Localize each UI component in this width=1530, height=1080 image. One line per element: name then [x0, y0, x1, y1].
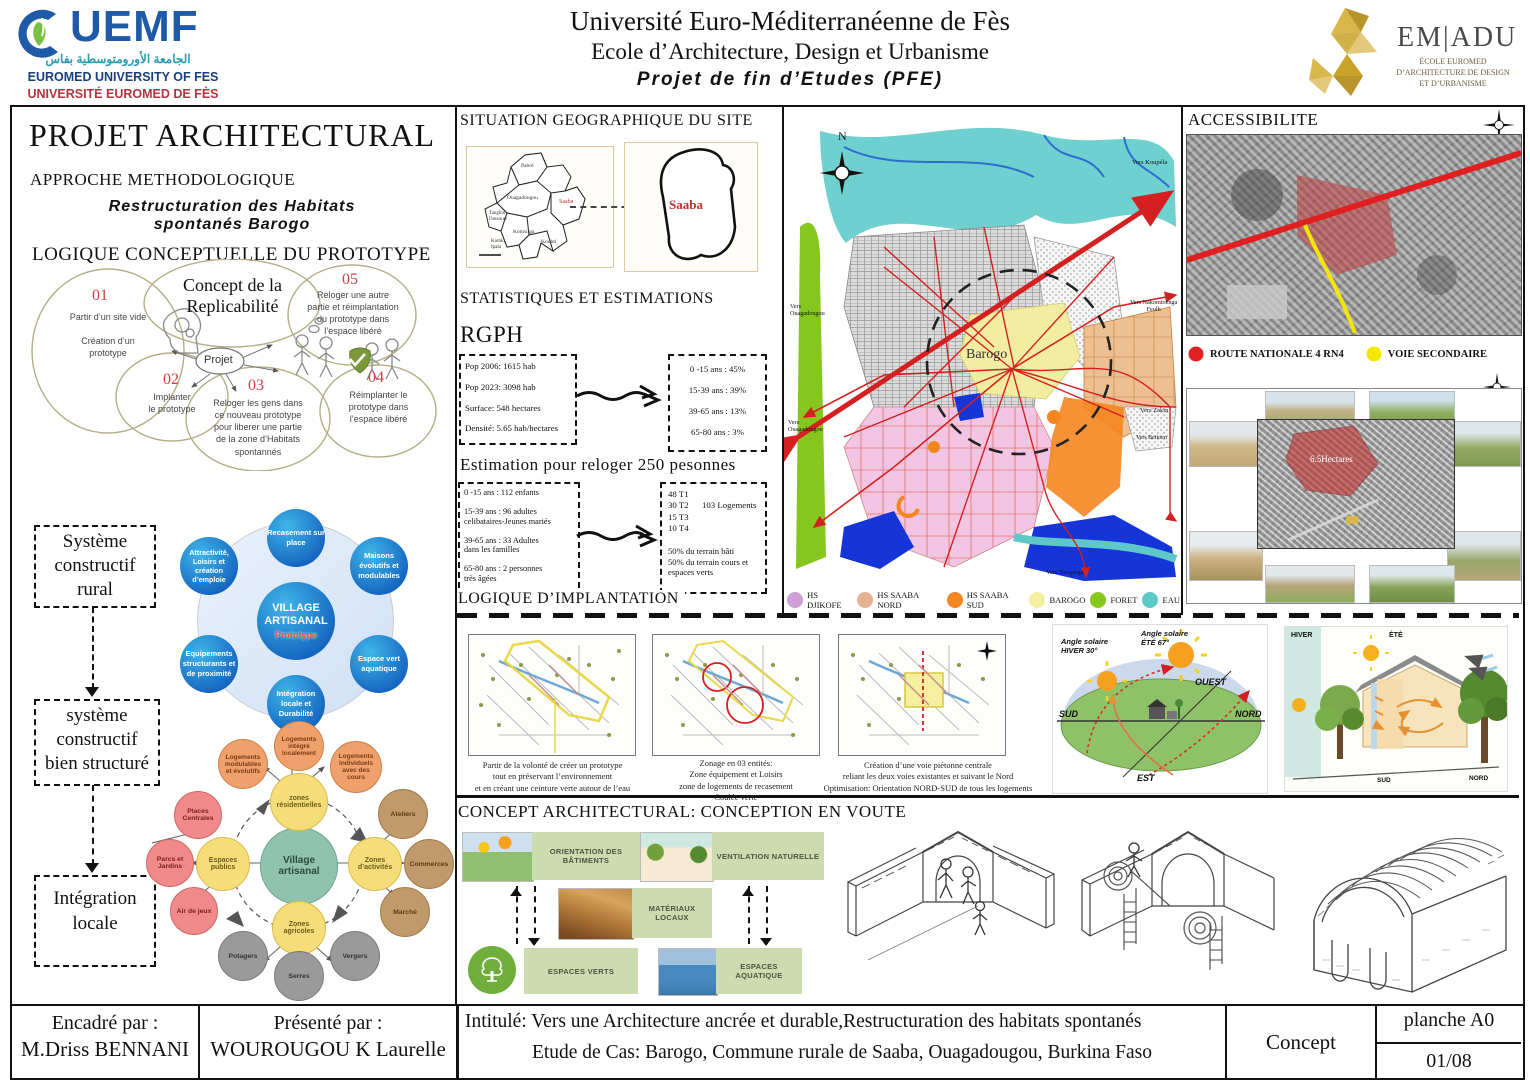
region-label: Pabré	[521, 163, 534, 169]
materiaux-thumb	[558, 888, 634, 940]
access-legend: ROUTE NATIONALE 4 RN4 VOIE SECONDAIRE	[1188, 344, 1520, 364]
sun-path-diagram: Angle solaire HIVER 30° Angle solaire ÉT…	[1052, 624, 1268, 794]
footer-phase-cell: Concept	[1227, 1006, 1377, 1078]
hub-item: Equipements structurants et de proximité	[180, 635, 238, 693]
legend-dot-djikofe	[787, 592, 803, 608]
legend-label: HS SAABA NORD	[877, 590, 941, 610]
divider-implantation	[457, 613, 1519, 618]
concept-item-ventilation: VENTILATION NATURELLE	[712, 832, 824, 880]
vault-drawing-2	[1060, 810, 1290, 996]
rgph-title: RGPH	[460, 322, 523, 348]
etude-text: Etude de Cas: Barogo, Commune rurale de …	[459, 1042, 1225, 1064]
implantation-map-2	[652, 634, 820, 756]
logements-modulables: Logements modulables et évolutifs	[218, 739, 268, 789]
approche-title: APPROCHE METHODOLOGIQUE	[30, 170, 452, 190]
sun-winter-label: Angle solaire HIVER 30°	[1061, 637, 1108, 655]
university-title: Université Euro-Méditerranéenne de Fès	[420, 6, 1160, 37]
zone-activites: Zones d’activités	[348, 837, 402, 891]
footer-intitule-cell: Intitulé: Vers une Architecture ancrée e…	[459, 1006, 1227, 1078]
hub-item: Recasement sur place	[267, 509, 325, 567]
site-photo	[1189, 531, 1263, 581]
hub-center-title: VILLAGE ARTISANAL	[264, 602, 328, 628]
divider-map-access	[1181, 107, 1183, 615]
logements-types: 48 T1 30 T2 15 T3 10 T4	[668, 489, 689, 535]
step-text: Reloger une autre partie et réimplantati…	[288, 289, 418, 338]
emadu-triangles-icon	[1303, 6, 1393, 98]
region-label: Komki Ipala	[491, 239, 505, 251]
approche-subtitle: Restructuration des Habitats spontanés B…	[12, 198, 452, 234]
legend-dot-saaba-nord	[857, 592, 873, 608]
aquatique-thumb	[658, 948, 718, 996]
access-title: ACCESSIBILITE	[1188, 110, 1318, 130]
zone-residentielles: zones résidentielles	[270, 773, 328, 831]
step-num: 02	[163, 371, 179, 389]
hub-item: Attractivité, Loisirs et création d’empl…	[180, 537, 238, 595]
site-photo	[1447, 421, 1521, 467]
legend-label: HS DJIKOFE	[807, 590, 852, 610]
implantation-title: LOGIQUE D’IMPLANTATION	[458, 590, 685, 608]
uemf-wordmark: UEMF	[70, 2, 199, 52]
ateliers: Ateliers	[378, 789, 428, 839]
sud-label: SUD	[1059, 709, 1078, 719]
legend-dot-saaba-sud	[947, 592, 963, 608]
dir-ouaga-1: Vers Ouagadougou	[790, 303, 825, 318]
intitule-text: Intitulé: Vers une Architecture ancrée e…	[465, 1011, 1225, 1033]
implantation-caption-1: Partir de la volonté de créer un prototy…	[455, 760, 650, 794]
flow-connector	[766, 886, 768, 944]
uemf-arabic: الجامعة الأورومتوسطية بفاس	[18, 52, 218, 66]
site-photo	[1189, 421, 1263, 467]
village-center: Village artisanal	[260, 827, 338, 905]
dir-nakomtoenga: Vers Nakomtoenga Feulh	[1130, 299, 1177, 314]
footer-planche-cell: planche A0 01/08	[1377, 1006, 1521, 1078]
flow-connector	[534, 886, 536, 944]
bioclimatic-section-diagram: HIVER ÉTÉ SUD NORD	[1284, 626, 1508, 792]
region-label: Ouagadougou	[507, 195, 538, 201]
emadu-logo: EM|ADU ÉCOLE EUROMED D’ARCHITECTURE DE D…	[1295, 4, 1525, 100]
hub-item: Maisons évolutifs et modulables	[350, 537, 408, 595]
header: UEMF الجامعة الأورومتوسطية بفاس EUROMED …	[0, 0, 1530, 105]
implantation-caption-2: Zonage en 03 entités: Zone équipement et…	[648, 758, 824, 804]
ventilation-thumb	[640, 832, 714, 882]
step-text: Reloger les gens dans ce nouveau prototy…	[188, 397, 328, 458]
tree-icon	[1458, 669, 1507, 763]
legend-dot-eau	[1142, 592, 1158, 608]
serres: Serres	[274, 951, 324, 1001]
logements-terrain: 50% du terrain bâti 50% du terrain cours…	[668, 546, 748, 578]
nord-label: NORD	[1469, 775, 1488, 782]
stats-arrow	[574, 522, 662, 548]
vault-drawing-3	[1292, 810, 1524, 996]
dir-koupela: Vers Koupéla	[1132, 159, 1167, 166]
pfe-title: Projet de fin d’Etudes (PFE)	[420, 69, 1160, 91]
est-label: EST	[1137, 773, 1155, 783]
map-legend: HS DJIKOFE HS SAABA NORD HS SAABA SUD BA…	[786, 588, 1180, 612]
flow-box-integration: Intégration locale	[34, 875, 156, 967]
map-barogo-label: Barogo	[966, 347, 1007, 363]
step-num: 04	[368, 369, 384, 387]
step-text: Réimplanter le prototype dans l’espace l…	[326, 389, 431, 425]
concept-item-materiaux: MATÉRIAUX LOCAUX	[632, 888, 712, 938]
tree-icon	[1315, 685, 1364, 759]
concept-item-aquatique: ESPACES AQUATIQUE	[716, 948, 802, 994]
concept-item-espaces-verts: ESPACES VERTS	[524, 948, 638, 994]
implantation-caption-3: Création d’une voie piétonne centrale re…	[808, 760, 1048, 794]
village-artisanal-hub: Recasement sur place Maisons évolutifs e…	[162, 507, 442, 737]
region-label: Koubri	[541, 239, 557, 245]
legend-label-rn4: ROUTE NATIONALE 4 RN4	[1210, 349, 1344, 360]
encadre-name: M.Driss BENNANI	[12, 1037, 198, 1062]
vergers: Vergers	[330, 931, 380, 981]
legend-label: BAROGO	[1049, 595, 1085, 605]
left-panel-title: PROJET ARCHITECTURAL	[12, 117, 452, 154]
dir-zakin: Vers Zakin	[1140, 407, 1168, 414]
age-box: 0 -15 ans : 45% 15-39 ans : 39% 39-65 an…	[668, 354, 767, 452]
implantation-map-1	[468, 634, 636, 756]
coil-icon	[1104, 862, 1216, 944]
concept-title: Concept de la Replicabilité	[170, 275, 295, 316]
site-photo-collage: 6.5Hectares	[1186, 388, 1522, 604]
legend-label-voie: VOIE SECONDAIRE	[1388, 349, 1487, 360]
hub-center-sub: Prototype	[275, 630, 317, 640]
saaba-label: Saaba	[669, 197, 703, 213]
site-photo	[1265, 565, 1355, 603]
implantation-map-3	[838, 634, 1006, 756]
hub-item: Espace vert aquatique	[350, 635, 408, 693]
legend-label: HS SAABA SUD	[967, 590, 1025, 610]
sud-label: SUD	[1377, 777, 1391, 784]
uemf-line-fr: UNIVERSITÉ EUROMED DE FÈS	[18, 87, 228, 101]
site-area-label: 6.5Hectares	[1310, 454, 1353, 464]
parcs-jardins: Parcs et Jardins	[146, 839, 194, 887]
legend-dot-rn4	[1189, 347, 1204, 362]
flow-box-structure: système constructif bien structuré	[34, 699, 160, 786]
hiver-label: HIVER	[1291, 632, 1312, 639]
logements-box: 48 T1 30 T2 15 T3 10 T4 103 Logements 50…	[660, 482, 767, 594]
concept-item-orientation: ORIENTATION DES BÂTIMENTS	[532, 832, 640, 880]
dir-tangsega: Vers Tangsega	[1046, 569, 1084, 576]
concept-flow: ORIENTATION DES BÂTIMENTS VENTILATION NA…	[458, 828, 818, 1000]
site-aerial-photo: 6.5Hectares	[1257, 419, 1455, 549]
logements-individuels: Logements individuels avec des cours	[330, 741, 382, 793]
divider-concept	[457, 795, 1519, 798]
nord-label: NORD	[1235, 709, 1262, 719]
worker-figure	[1126, 843, 1142, 877]
logements-total: 103 Logements	[702, 500, 756, 510]
legend-label: FORET	[1110, 595, 1137, 605]
logements-integres: Logements intégré localement	[274, 721, 324, 771]
replicability-diagram: 01 Partir d’un site vide Création d’un p…	[20, 259, 450, 471]
legend-label: EAU	[1163, 595, 1180, 605]
presente-label: Présenté par :	[200, 1012, 456, 1035]
legend-dot-barogo	[1029, 592, 1045, 608]
legend-dot-voie	[1366, 347, 1381, 362]
ouest-label: OUEST	[1195, 677, 1226, 687]
emadu-subtitle: ÉCOLE EUROMED D’ARCHITECTURE DE DESIGN E…	[1383, 56, 1523, 90]
saaba-map: Saaba	[624, 142, 758, 272]
region-label: Tanghin Dassouri	[489, 211, 507, 223]
projet-label: Projet	[204, 354, 233, 366]
poster-root: UEMF الجامعة الأورومتوسطية بفاس EUROMED …	[0, 0, 1530, 1080]
barogo-territory-map: N Barogo Vers Koupéla Vers Nakomtoenga F…	[784, 107, 1180, 585]
legend-dot-foret	[1090, 592, 1106, 608]
stats-arrow	[574, 382, 666, 408]
footer-encadre-cell: Encadré par : M.Driss BENNANI	[12, 1006, 200, 1078]
vault-drawing-1	[828, 810, 1058, 996]
school-title: Ecole d’Architecture, Design et Urbanism…	[420, 39, 1160, 65]
step-num: 03	[248, 377, 264, 395]
estimation-title: Estimation pour reloger 250 pesonnes	[460, 455, 736, 475]
step-num: 01	[92, 287, 108, 305]
site-photo	[1447, 531, 1521, 581]
ete-label: ÉTÉ	[1389, 632, 1403, 639]
estimation-box: 0 -15 ans : 112 enfants 15-39 ans : 96 a…	[458, 482, 580, 598]
footer-presente-cell: Présenté par : WOUROUGOU K Laurelle	[200, 1006, 459, 1078]
commerces: Commerces	[404, 839, 454, 889]
map-north-label: N	[838, 129, 847, 144]
access-satellite-map	[1186, 134, 1522, 336]
flow-box-rural: Système constructif rural	[34, 525, 156, 608]
page-number: 01/08	[1377, 1044, 1521, 1073]
site-photo	[1369, 565, 1455, 603]
marche: Marché	[380, 887, 430, 937]
places-centrales: Places Centrales	[174, 791, 222, 839]
planche-label: planche A0	[1377, 1006, 1521, 1044]
encadre-label: Encadré par :	[12, 1012, 198, 1035]
dir-ouaga-2: Vers Ouagadougou	[788, 419, 823, 434]
orientation-thumb	[462, 832, 534, 882]
air-de-jeux: Air de jeux	[170, 887, 218, 935]
emadu-wordmark: EM|ADU	[1397, 22, 1517, 54]
left-panel: PROJET ARCHITECTURAL APPROCHE METHODOLOG…	[12, 107, 452, 1001]
situation-title: SITUATION GEOGRAPHIQUE DU SITE	[460, 112, 753, 130]
region-label-saaba: Saaba	[559, 199, 573, 205]
phase-label: Concept	[1266, 1030, 1336, 1055]
hub-center: VILLAGE ARTISANAL Prototype	[257, 582, 335, 660]
rgph-box: Pop 2006: 1615 hab Pop 2023: 3098 hab Su…	[459, 354, 577, 445]
village-flower-diagram: Village artisanal zones résidentielles Z…	[152, 735, 452, 999]
region-label: Komsilga	[513, 229, 534, 235]
step-text: Partir d’un site vide Création d’un prot…	[48, 311, 168, 360]
step-num: 05	[342, 271, 358, 289]
tree-icon	[468, 946, 516, 994]
sun-summer-label: Angle solaire ÉTÉ 67°	[1141, 629, 1188, 647]
uemf-line-en: EUROMED UNIVERSITY OF FES	[18, 70, 228, 84]
footer: Encadré par : M.Driss BENNANI Présenté p…	[10, 1004, 1525, 1080]
presente-name: WOUROUGOU K Laurelle	[200, 1037, 456, 1062]
ladder-icon	[1124, 888, 1222, 970]
dir-betioen: Vers Betioen	[1136, 435, 1167, 441]
flow-arrow	[92, 785, 94, 865]
zone-espaces-publics: Espaces publics	[196, 837, 250, 891]
stats-title: STATISTIQUES ET ESTIMATIONS	[460, 290, 714, 308]
zone-agricoles: Zones agricoles	[272, 901, 326, 955]
flow-arrow	[92, 607, 94, 689]
potagers: Potagers	[218, 931, 268, 981]
